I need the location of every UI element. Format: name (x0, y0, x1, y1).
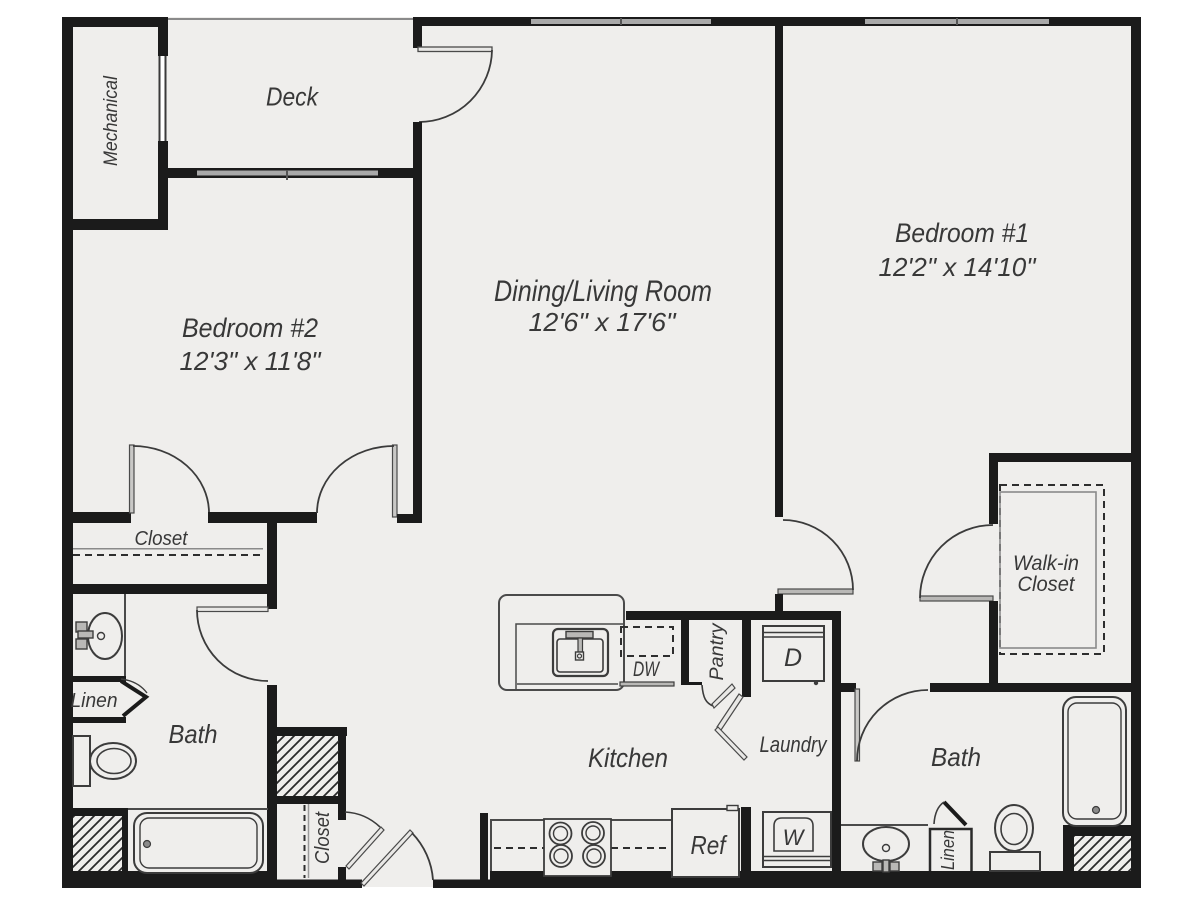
svg-text:12'3" x 11'8": 12'3" x 11'8" (180, 346, 323, 376)
svg-text:DW: DW (633, 658, 661, 681)
svg-text:Ref: Ref (691, 830, 728, 860)
svg-text:Deck: Deck (266, 82, 320, 112)
svg-text:Dining/Living Room: Dining/Living Room (494, 275, 712, 308)
svg-text:Mechanical: Mechanical (101, 75, 122, 166)
svg-text:D: D (784, 644, 802, 672)
svg-text:Bath: Bath (169, 719, 218, 749)
svg-text:12'2" x 14'10": 12'2" x 14'10" (879, 252, 1038, 282)
svg-text:Bedroom #1: Bedroom #1 (895, 218, 1029, 248)
svg-text:Kitchen: Kitchen (588, 743, 668, 773)
svg-text:Bath: Bath (931, 742, 981, 772)
svg-text:Closet: Closet (135, 528, 189, 550)
svg-text:Linen: Linen (71, 690, 118, 712)
svg-text:Pantry: Pantry (707, 622, 728, 681)
svg-text:Laundry: Laundry (760, 732, 829, 757)
svg-text:Linen: Linen (938, 830, 958, 870)
svg-text:Closet: Closet (1018, 573, 1076, 596)
svg-text:W: W (783, 825, 806, 850)
svg-text:Walk-in: Walk-in (1013, 552, 1079, 575)
svg-text:12'6" x 17'6": 12'6" x 17'6" (529, 307, 678, 337)
svg-text:Closet: Closet (312, 811, 334, 864)
svg-text:Bedroom #2: Bedroom #2 (182, 313, 318, 343)
